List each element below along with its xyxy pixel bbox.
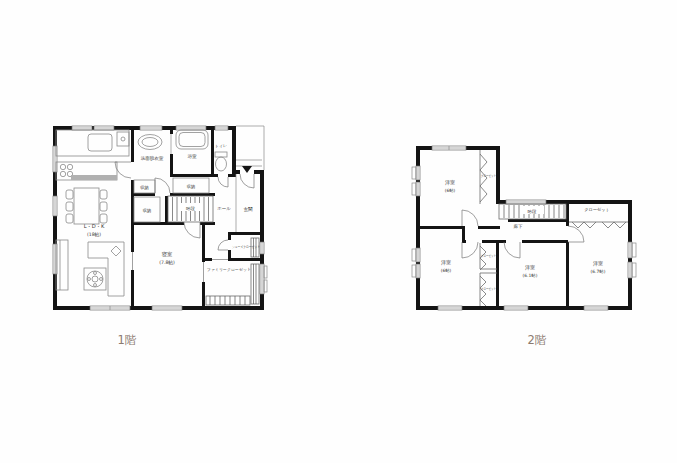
closet-nw-label: クローゼット	[481, 174, 496, 178]
kitchen-sink	[88, 134, 112, 151]
storage-wash-label: 収納	[140, 185, 148, 190]
floorplan-page: L・D・K (18帖) 寝室 (7.8帖) 洗面脱衣室 浴室 トイレ 収納 収納…	[0, 0, 677, 463]
room-nw-label: 洋室	[445, 179, 455, 186]
family-closet-label: ファミリークローゼット	[207, 267, 251, 272]
sofa	[56, 240, 68, 290]
stove-burner	[60, 171, 65, 176]
floor2-closets	[480, 150, 628, 306]
closet-w2-label: クローゼット	[481, 287, 496, 291]
floor2-walls	[416, 146, 632, 310]
floor1-title: 1階	[118, 333, 137, 347]
floor2-title: 2階	[528, 333, 547, 347]
washroom-label: 洗面脱衣室	[141, 155, 164, 161]
toilet-tank	[215, 152, 227, 157]
bedroom-size-label: (7.8帖)	[159, 260, 175, 266]
floor2-plan: 洋室 (6帖) 洋室 (6帖) 洋室 (6.1帖) 洋室 (6.7帖) 階段 廊…	[412, 146, 636, 310]
room-se-size-label: (6.7帖)	[591, 269, 606, 274]
corridor-label: 廊下	[514, 224, 523, 229]
stairs2-label: 階段	[528, 209, 537, 214]
entrance-label: 玄関	[243, 207, 253, 212]
room-sw-size-label: (6帖)	[441, 268, 452, 273]
counter-top	[71, 175, 117, 180]
bath-label: 浴室	[188, 154, 198, 159]
room-nw-size-label: (6帖)	[445, 188, 456, 193]
room-se-label: 洋室	[593, 260, 603, 267]
storage-bath-label: 収納	[187, 184, 195, 189]
hall-label: ホール	[217, 206, 231, 211]
stairs1-label: 階段	[186, 206, 195, 211]
ldk-label: L・D・K	[84, 223, 105, 229]
shoe-closet-label: シューズクローゼット	[232, 245, 260, 249]
closet-main-label: クローゼット	[584, 207, 610, 212]
closet-w1-label: クローゼット	[481, 254, 496, 258]
entrance-marker	[242, 166, 252, 173]
floor1-walls	[53, 126, 264, 310]
kitchen-furniture	[56, 130, 129, 296]
toilet-label: トイレ	[215, 143, 227, 148]
toilet-bowl	[216, 157, 227, 171]
room-sw-label: 洋室	[441, 259, 451, 266]
ldk-size-label: (18帖)	[87, 232, 101, 238]
floor1-plan: L・D・K (18帖) 寝室 (7.8帖) 洗面脱衣室 浴室 トイレ 収納 収納…	[53, 126, 267, 310]
floorplan-drawing: L・D・K (18帖) 寝室 (7.8帖) 洗面脱衣室 浴室 トイレ 収納 収納…	[0, 0, 677, 463]
stove-burner	[60, 164, 65, 169]
room-s-size-label: (6.1帖)	[523, 273, 538, 278]
room-s-label: 洋室	[525, 264, 535, 271]
dining-table	[74, 188, 99, 224]
refrigerator	[117, 132, 129, 146]
storage-hall-label: 収納	[143, 208, 151, 213]
entrance-porch	[236, 126, 264, 232]
stove-burner	[67, 164, 72, 169]
bedroom-label: 寝室	[162, 251, 172, 258]
